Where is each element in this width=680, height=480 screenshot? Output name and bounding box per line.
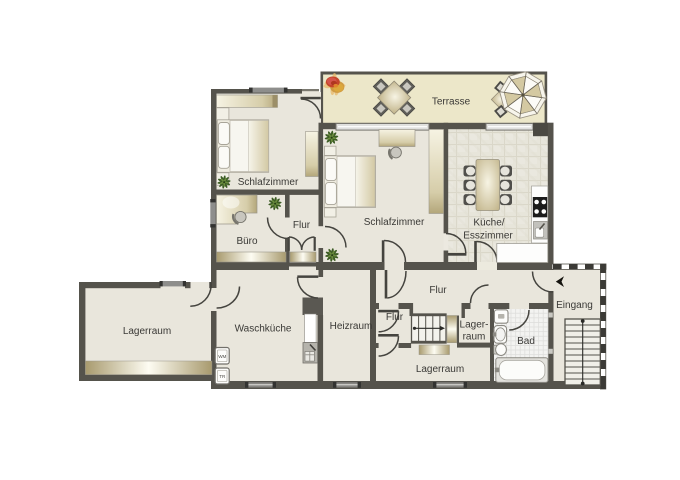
svg-text:Schlafzimmer: Schlafzimmer (364, 217, 425, 228)
svg-text:Büro: Büro (236, 236, 258, 247)
svg-text:Bad: Bad (517, 336, 535, 347)
svg-text:Heizraum: Heizraum (330, 321, 373, 332)
svg-text:Terrasse: Terrasse (432, 97, 471, 108)
svg-text:Küche/: Küche/ (473, 218, 504, 229)
svg-text:TR: TR (219, 374, 226, 379)
svg-text:Lagerraum: Lagerraum (416, 364, 464, 375)
svg-text:Flur: Flur (293, 220, 311, 231)
svg-text:Waschküche: Waschküche (235, 324, 292, 335)
svg-text:Flur: Flur (386, 312, 404, 323)
svg-text:Lagerraum: Lagerraum (123, 326, 171, 337)
svg-text:raum: raum (463, 332, 486, 343)
svg-text:Lager-: Lager- (460, 320, 489, 331)
svg-text:Esszimmer: Esszimmer (463, 231, 513, 242)
svg-text:Schlafzimmer: Schlafzimmer (238, 177, 299, 188)
svg-text:Eingang: Eingang (556, 300, 593, 311)
svg-text:Flur: Flur (429, 285, 447, 296)
svg-text:WM: WM (218, 354, 226, 359)
